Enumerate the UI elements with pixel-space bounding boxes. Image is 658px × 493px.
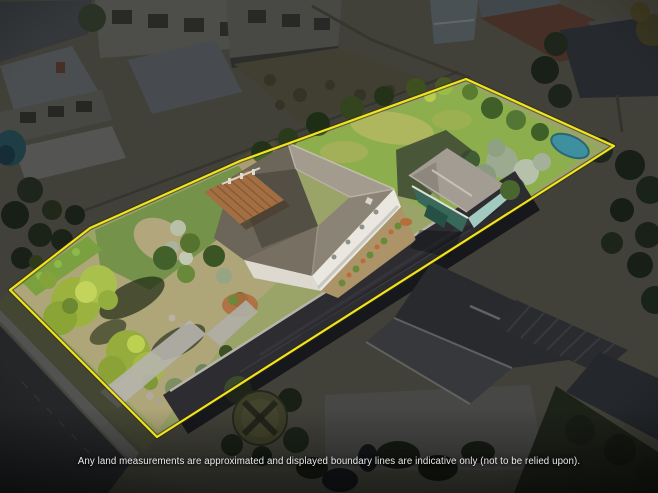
bottom-fade bbox=[0, 408, 658, 493]
disclaimer-text: Any land measurements are approximated a… bbox=[0, 455, 658, 468]
aerial-photo: Any land measurements are approximated a… bbox=[0, 0, 658, 493]
